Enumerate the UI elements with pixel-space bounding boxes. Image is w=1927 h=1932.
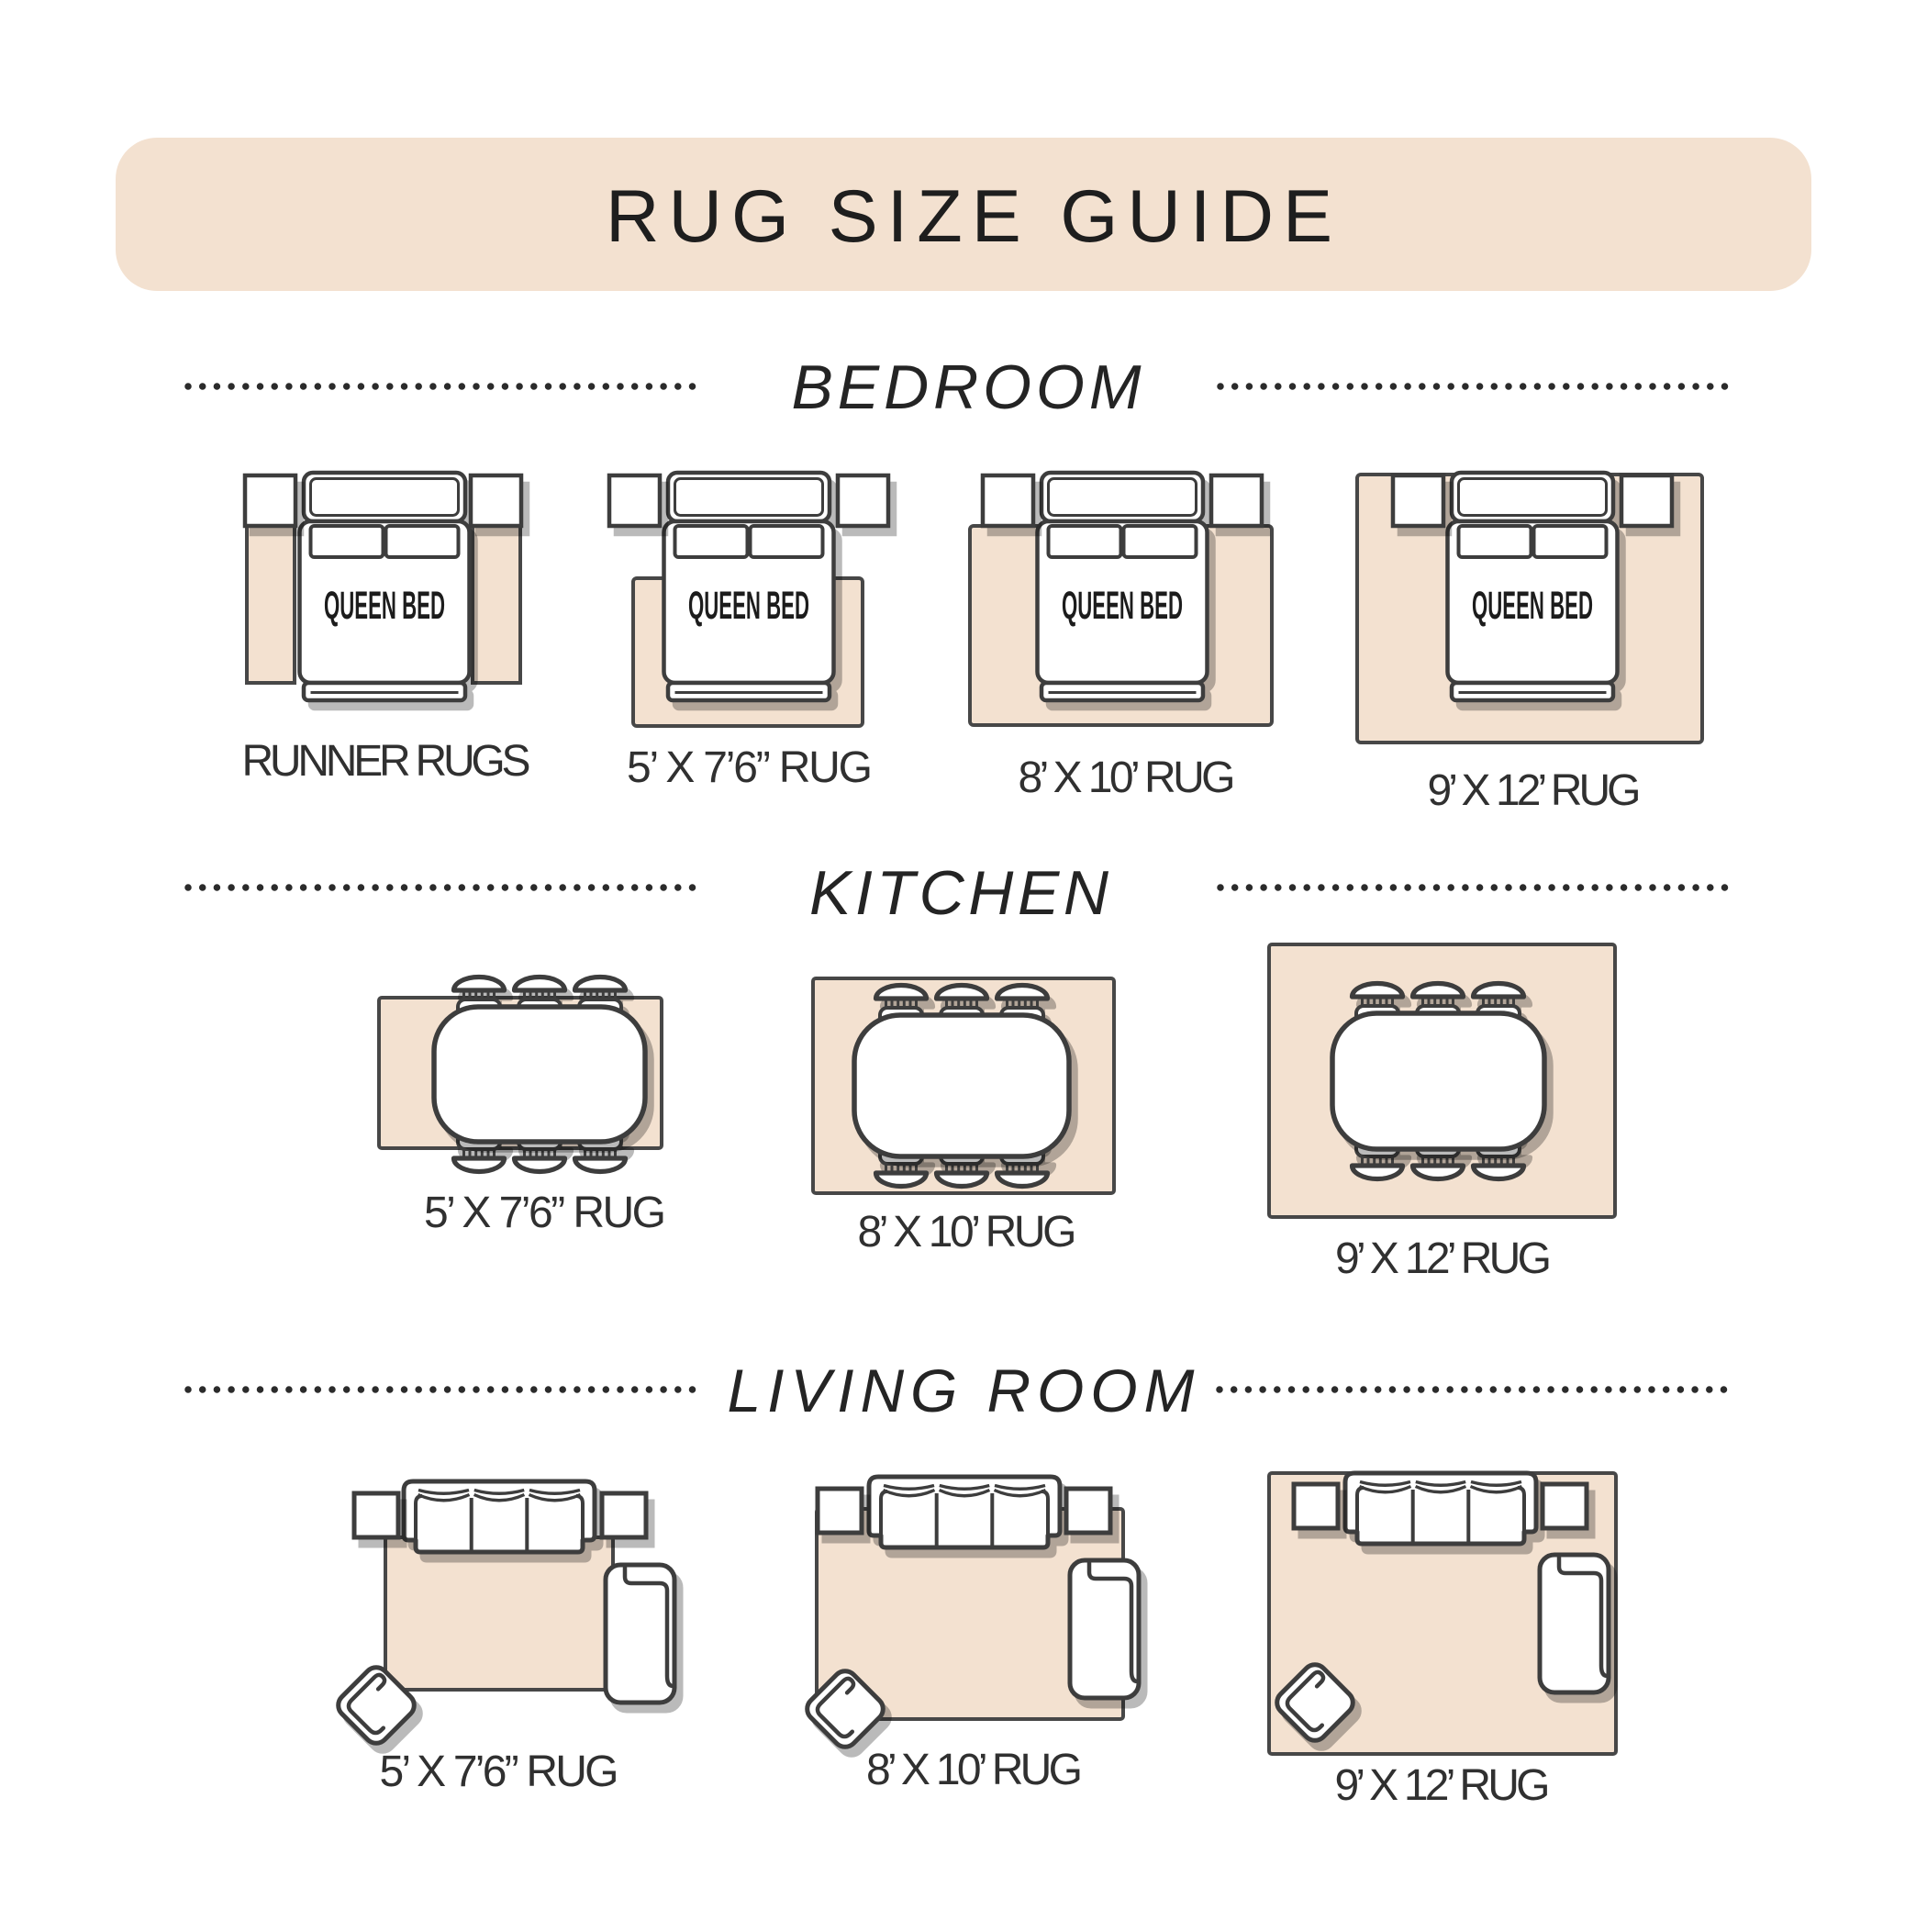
svg-text:KITCHEN: KITCHEN	[809, 858, 1109, 928]
svg-text:5’ X 7’6” RUG: 5’ X 7’6” RUG	[424, 1189, 666, 1237]
svg-text:9’ X 12’ RUG: 9’ X 12’ RUG	[1335, 1234, 1552, 1283]
svg-text:5’ X 7’6” RUG: 5’ X 7’6” RUG	[380, 1748, 619, 1796]
svg-text:8’ X 10’ RUG: 8’ X 10’ RUG	[858, 1208, 1077, 1256]
svg-text:9’ X 12’ RUG: 9’ X 12’ RUG	[1335, 1761, 1551, 1810]
svg-text:9’ X 12’ RUG: 9’ X 12’ RUG	[1428, 766, 1642, 815]
svg-text:8’ X 10’ RUG: 8’ X 10’ RUG	[1019, 754, 1236, 802]
svg-text:RUNNER RUGS: RUNNER RUGS	[242, 737, 531, 786]
svg-text:8’ X 10’ RUG: 8’ X 10’ RUG	[866, 1746, 1083, 1794]
svg-text:BEDROOM: BEDROOM	[792, 352, 1142, 422]
svg-text:5’ X 7’6” RUG: 5’ X 7’6” RUG	[627, 743, 873, 792]
